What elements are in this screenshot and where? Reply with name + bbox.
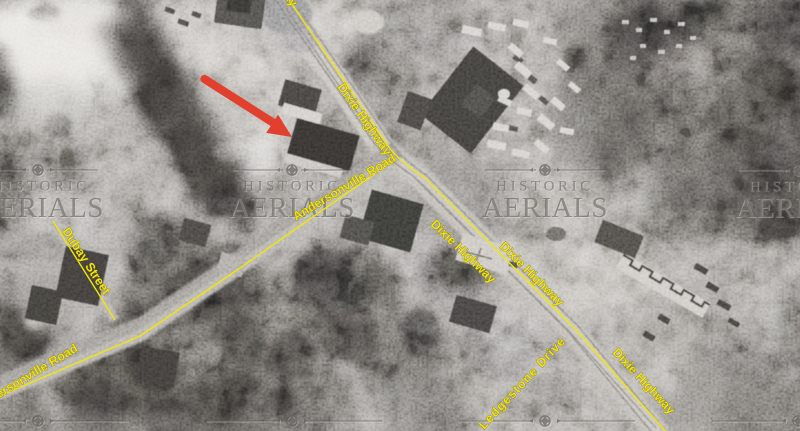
svg-text:AERIALS: AERIALS bbox=[0, 192, 104, 224]
svg-text:AERIALS: AERIALS bbox=[735, 192, 800, 224]
svg-text:AERIALS: AERIALS bbox=[482, 192, 608, 224]
